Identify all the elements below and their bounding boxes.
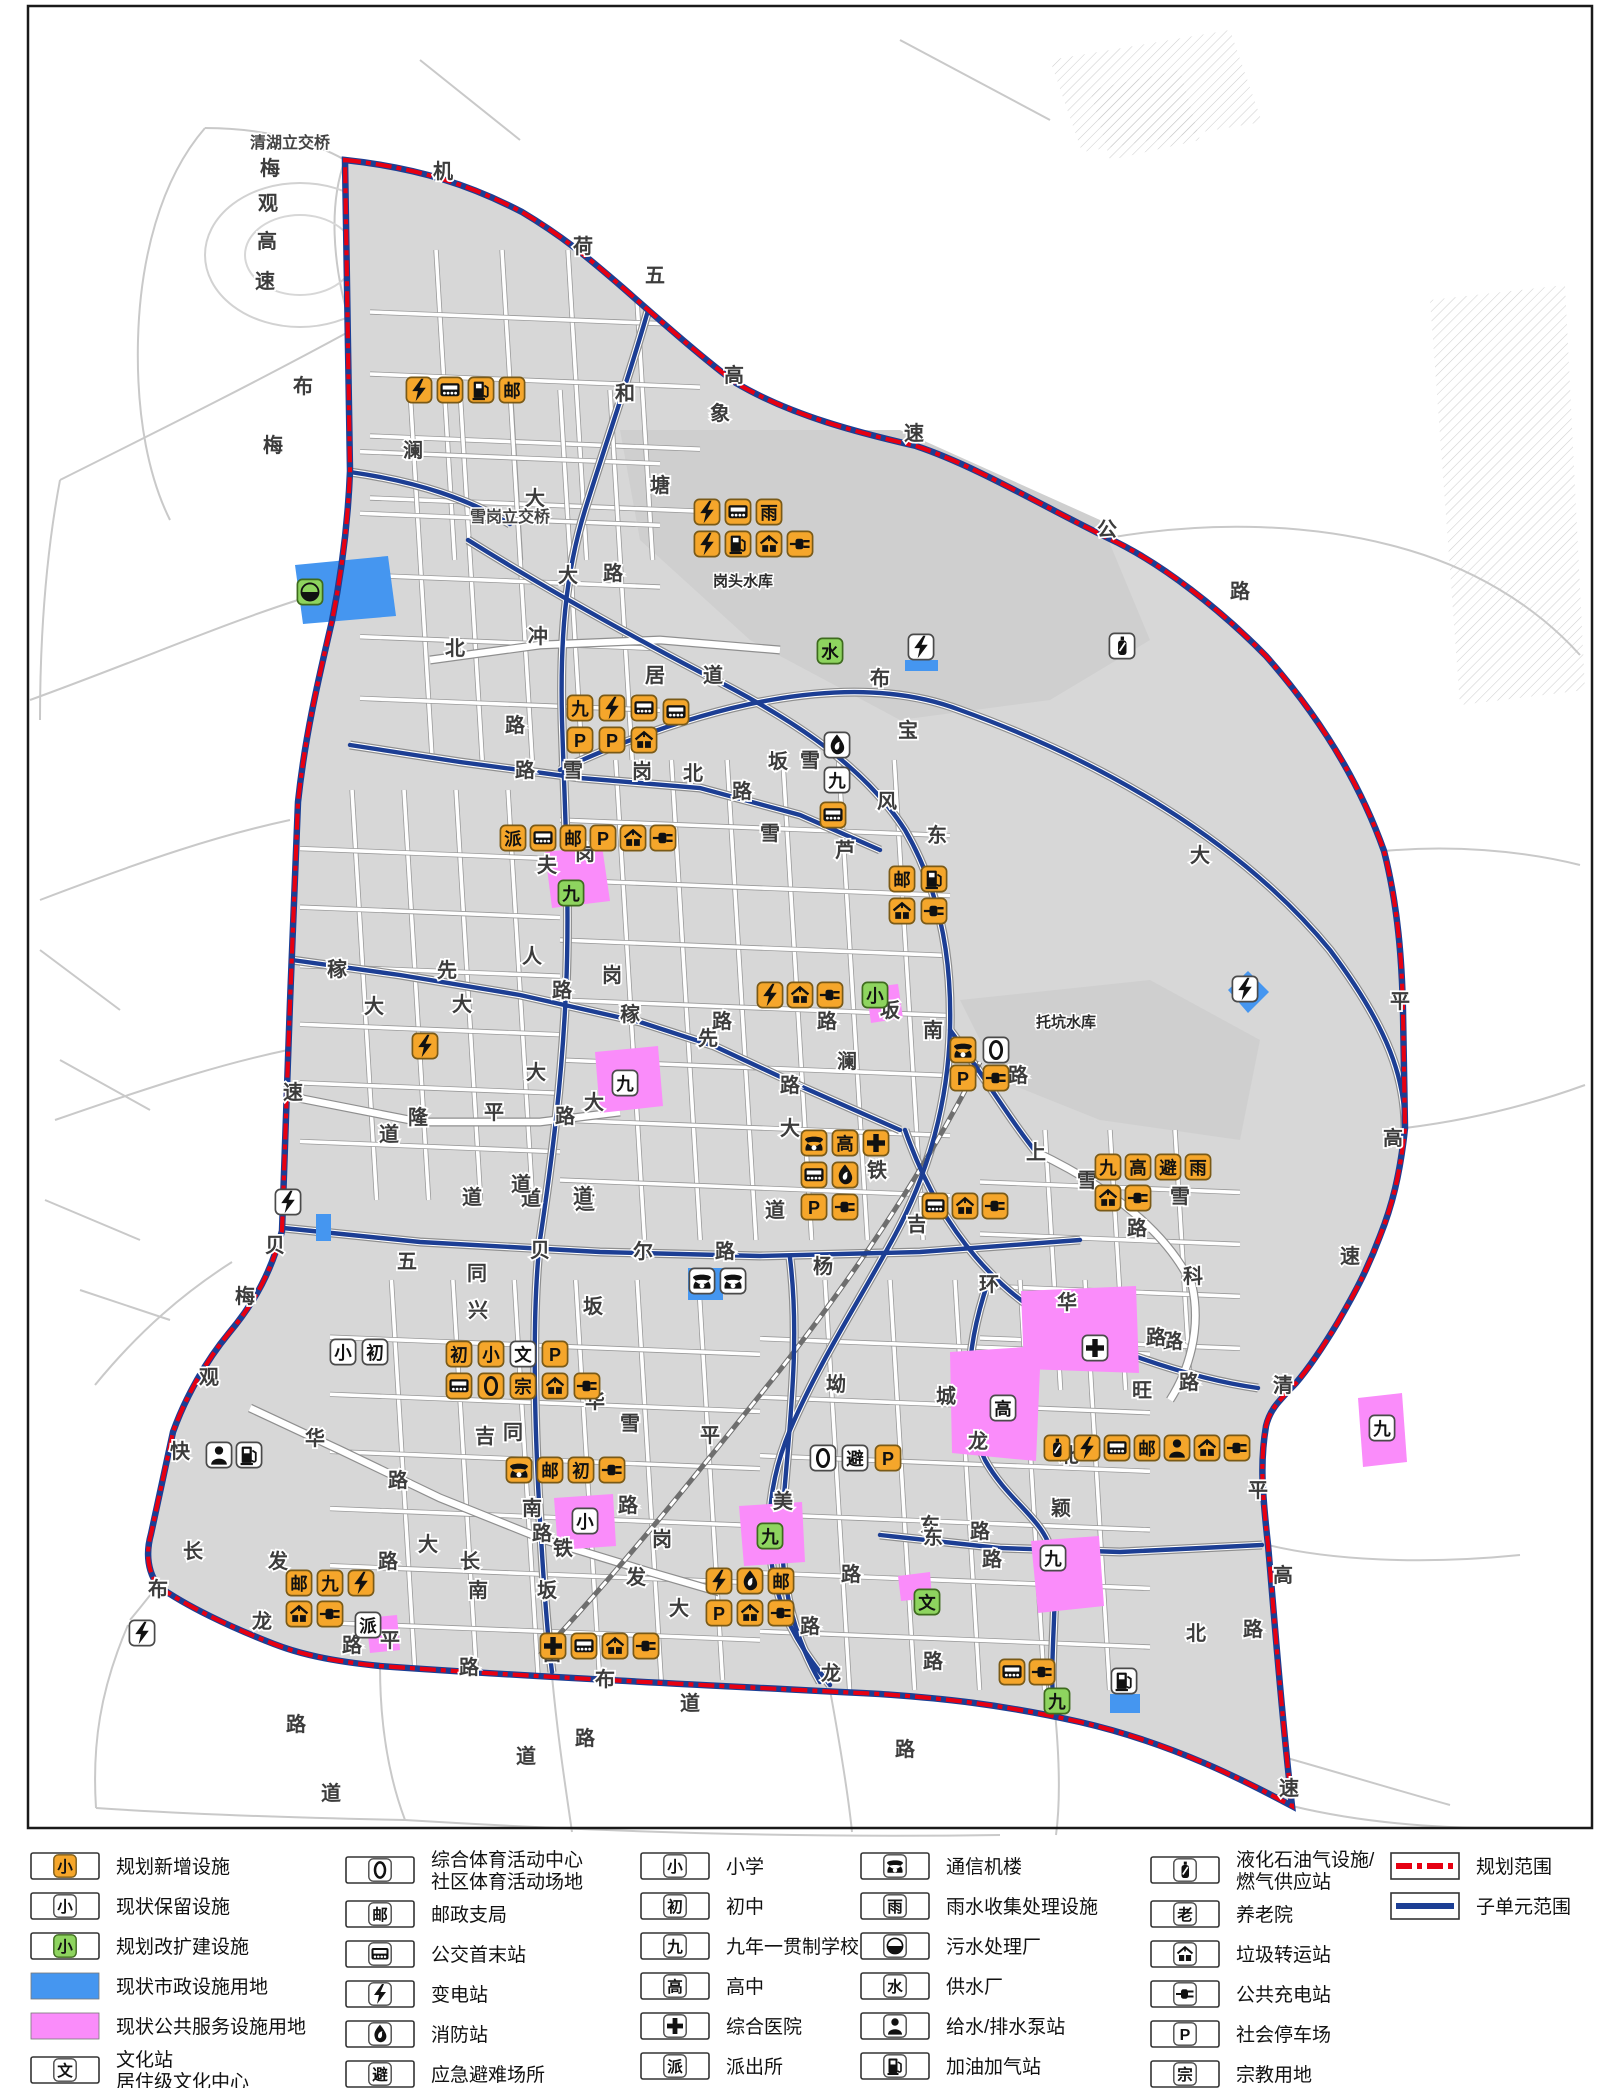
facility-icon-P: P	[599, 727, 624, 752]
road-label: 宝	[898, 718, 918, 742]
road-label: 雪	[563, 759, 583, 782]
facility-icon-bolt	[348, 1570, 373, 1595]
svg-text:老: 老	[1176, 1905, 1193, 1924]
road-label: 道	[379, 1122, 399, 1146]
facility-icon-bolt	[599, 695, 624, 720]
road-label: 大	[525, 487, 545, 510]
legend-item: 污水处理厂	[860, 1928, 1098, 1968]
svg-text:邮: 邮	[893, 870, 910, 890]
road-label: 科	[1183, 1264, 1203, 1288]
svg-text:初: 初	[366, 1343, 383, 1363]
legend-item: 公共充电站	[1150, 1976, 1374, 2016]
facility-icon-bolt	[694, 531, 719, 556]
road-label: 机	[433, 159, 453, 183]
road-label: 道	[511, 1172, 531, 1196]
road-label: 稼	[327, 957, 347, 981]
facility-icon-派: 派	[355, 1612, 380, 1637]
road-label: 路	[388, 1468, 409, 1492]
road-label: 道	[703, 663, 723, 687]
legend-swatch: 水	[860, 1972, 930, 2005]
road-label: 先	[437, 958, 457, 982]
facility-icon-P: P	[706, 1600, 731, 1625]
road-label: 路	[378, 1549, 399, 1573]
legend-label: 给水/排水泵站	[946, 2017, 1065, 2039]
facility-icon-trash	[737, 1600, 762, 1625]
road-label: 雪	[760, 822, 780, 845]
road-label: 高	[1273, 1563, 1293, 1587]
facility-icon-person	[206, 1442, 231, 1467]
road-label: 布	[595, 1667, 615, 1691]
facility-icon-trash	[756, 531, 781, 556]
svg-text:九: 九	[1043, 1549, 1062, 1569]
road-label: 冲	[528, 625, 548, 648]
facility-icon-fire	[832, 1162, 857, 1187]
facility-icon-P: P	[875, 1445, 900, 1470]
facility-icon-P: P	[950, 1065, 975, 1090]
legend-label: 现状市政设施用地	[116, 1977, 268, 1999]
legend-label: 规划改扩建设施	[116, 1937, 249, 1959]
road-label: 长	[460, 1550, 481, 1573]
road-label: 北	[683, 762, 703, 785]
road-label: 长	[183, 1540, 204, 1563]
road-label: 同	[503, 1422, 523, 1444]
road-label: 雪	[1170, 1185, 1190, 1208]
road-label: 路	[459, 1655, 480, 1679]
facility-icon-邮: 邮	[499, 377, 524, 402]
legend-swatch: 避	[345, 2060, 415, 2088]
legend-swatch: 小	[640, 1852, 710, 1885]
facility-icon-P: P	[801, 1194, 826, 1219]
facility-icon-九: 九	[1044, 1688, 1069, 1713]
svg-text:小: 小	[57, 1858, 73, 1876]
facility-icon-plug	[921, 898, 946, 923]
road-label: 大	[584, 1091, 604, 1114]
planning-map-page: 梅观高速布梅澜机荷高速公路五和象塘大大路冲北路居道布宝风雪岗北路坂雪路雪芦东夫岗…	[0, 0, 1600, 2088]
svg-text:高: 高	[994, 1399, 1011, 1419]
legend-swatch	[1150, 1940, 1220, 1973]
legend-label: 液化石油气设施/ 燃气供应站	[1236, 1850, 1374, 1894]
legend-label: 现状保留设施	[116, 1897, 230, 1919]
facility-icon-九: 九	[567, 695, 592, 720]
svg-text:文: 文	[57, 2061, 73, 2080]
svg-text:宗: 宗	[1177, 2065, 1193, 2084]
legend-swatch: 小	[30, 1852, 100, 1885]
legend-item: 子单元范围	[1390, 1888, 1571, 1928]
svg-text:避: 避	[372, 2065, 388, 2084]
svg-text:邮: 邮	[541, 1461, 558, 1481]
road-label: 路	[841, 1562, 862, 1586]
svg-text:小: 小	[667, 1858, 683, 1876]
legend-item: 通信机楼	[860, 1848, 1098, 1888]
facility-icon-九: 九	[612, 1070, 637, 1095]
facility-icon-plug	[317, 1601, 342, 1626]
facility-icon-水: 水	[817, 638, 842, 663]
facility-icon-phone	[720, 1268, 745, 1293]
facility-icon-邮: 邮	[537, 1457, 562, 1482]
facility-icon-plug	[1224, 1435, 1249, 1460]
road-label: 大	[558, 564, 578, 587]
facility-icon-bolt	[129, 1620, 154, 1645]
facility-icon-bolt	[757, 982, 782, 1007]
facility-icon-bus	[631, 695, 656, 720]
facility-icon-bus	[530, 825, 555, 850]
svg-text:小: 小	[576, 1512, 594, 1532]
legend-swatch: 派	[640, 2052, 710, 2085]
legend-item: 规划范围	[1390, 1848, 1571, 1888]
facility-icon-plug	[1125, 1185, 1150, 1210]
road-label: 象	[710, 401, 730, 425]
road-label: 布	[293, 374, 313, 398]
road-label: 隆	[408, 1105, 429, 1129]
road-label: 华	[1057, 1290, 1077, 1314]
svg-text:派: 派	[667, 2058, 683, 2076]
svg-text:P: P	[713, 1604, 725, 1624]
facility-icon-bolt	[1232, 976, 1257, 1001]
facility-icon-trash	[1095, 1185, 1120, 1210]
legend-label: 初中	[726, 1897, 764, 1919]
road-label: 路	[780, 1073, 801, 1097]
road-label: 高	[1383, 1126, 1403, 1150]
facility-icon-小: 小	[862, 982, 887, 1007]
road-label: 南	[923, 1019, 943, 1042]
legend-swatch	[860, 1852, 930, 1885]
road-label: 铁	[867, 1158, 887, 1182]
svg-text:文: 文	[514, 1345, 532, 1365]
legend-item: 加油加气站	[860, 2048, 1098, 2088]
svg-text:雨: 雨	[760, 503, 777, 523]
road-label: 龙	[821, 1661, 841, 1685]
legend-label: 供水厂	[946, 1977, 1003, 1999]
legend-swatch: 宗	[1150, 2060, 1220, 2088]
svg-text:高: 高	[836, 1134, 853, 1154]
road-label: 澜	[403, 439, 423, 462]
facility-icon-宗: 宗	[510, 1373, 535, 1398]
road-label: 人	[522, 945, 543, 968]
legend-swatch: 小	[30, 1932, 100, 1965]
road-label: 路	[1179, 1370, 1200, 1394]
water-label: 岗头水库	[713, 572, 773, 590]
road-label: 贝	[265, 1235, 285, 1257]
road-label: 道	[680, 1691, 700, 1715]
road-label: 五	[397, 1251, 417, 1273]
facility-icon-bolt	[275, 1189, 300, 1214]
facility-icon-小: 小	[478, 1341, 503, 1366]
road-label: 道	[573, 1184, 593, 1208]
svg-text:水: 水	[821, 642, 839, 662]
road-label: 速	[1279, 1777, 1299, 1800]
legend-swatch	[1150, 1856, 1220, 1889]
facility-icon-邮: 邮	[889, 866, 914, 891]
facility-icon-邮: 邮	[286, 1570, 311, 1595]
facility-icon-plug	[574, 1373, 599, 1398]
legend-item: 给水/排水泵站	[860, 2008, 1098, 2048]
svg-text:邮: 邮	[290, 1574, 307, 1594]
facility-icon-高: 高	[990, 1395, 1015, 1420]
svg-text:邮: 邮	[1138, 1439, 1155, 1459]
road-label: 高	[257, 229, 277, 253]
facility-icon-小: 小	[572, 1508, 597, 1533]
facility-icon-sport	[983, 1037, 1008, 1062]
facility-icon-九: 九	[1369, 1415, 1394, 1440]
zone-blue	[905, 660, 938, 671]
svg-text:九: 九	[666, 1938, 683, 1956]
legend-swatch: 九	[640, 1932, 710, 1965]
svg-text:水: 水	[887, 1977, 903, 1996]
legend-item: 小规划新增设施	[30, 1848, 306, 1888]
road-label: 清	[1273, 1373, 1293, 1397]
road-label: 南	[468, 1579, 488, 1602]
legend-label: 雨水收集处理设施	[946, 1897, 1098, 1919]
road-label: 铁	[553, 1536, 573, 1560]
facility-icon-九: 九	[317, 1570, 342, 1595]
road-label: 路	[515, 758, 536, 782]
legend-label: 子单元范围	[1476, 1897, 1571, 1919]
road-label: 发	[267, 1549, 289, 1573]
legend-label: 应急避难场所	[431, 2065, 545, 2087]
facility-icon-bus	[725, 499, 750, 524]
legend-item: 小现状保留设施	[30, 1888, 306, 1928]
legend-item: 邮邮政支局	[345, 1896, 583, 1936]
legend-item: 垃圾转运站	[1150, 1936, 1374, 1976]
road-label: 旺	[1132, 1380, 1152, 1402]
bridge-label: 清湖立交桥	[250, 133, 331, 152]
road-label: 路	[555, 1104, 576, 1128]
svg-text:九: 九	[760, 1527, 779, 1547]
facility-icon-小: 小	[330, 1339, 355, 1364]
facility-icon-trash	[1194, 1435, 1219, 1460]
legend-label: 社会停车场	[1236, 2025, 1331, 2047]
facility-icon-文: 文	[510, 1341, 535, 1366]
legend-swatch	[1150, 1980, 1220, 2013]
legend-item: 小规划改扩建设施	[30, 1928, 306, 1968]
legend-item: 九九年一贯制学校	[640, 1928, 859, 1968]
facility-icon-P: P	[542, 1341, 567, 1366]
facility-icon-bolt	[694, 499, 719, 524]
facility-icon-bolt	[706, 1568, 731, 1593]
facility-icon-文: 文	[914, 1589, 939, 1614]
road-label: 路	[505, 713, 526, 737]
road-label: 雪	[800, 749, 820, 772]
facility-icon-trash	[952, 1193, 977, 1218]
facility-icon-sport	[478, 1373, 503, 1398]
road-label: 道	[516, 1744, 536, 1768]
legend-swatch	[30, 2012, 100, 2045]
svg-text:P: P	[808, 1198, 820, 1218]
legend-swatch: 文	[30, 2056, 100, 2088]
facility-icon-bolt	[412, 1033, 437, 1058]
legend-label: 污水处理厂	[946, 1937, 1041, 1959]
road-label: 坂	[537, 1579, 558, 1602]
facility-icon-bus	[437, 377, 462, 402]
svg-text:小: 小	[57, 1898, 73, 1916]
road-label: 雪	[620, 1412, 640, 1435]
road-label: 平	[1248, 1480, 1268, 1502]
road-label: 颖	[1051, 1497, 1071, 1520]
legend-item: 宗宗教用地	[1150, 2056, 1374, 2088]
facility-icon-phone	[950, 1037, 975, 1062]
facility-icon-bus	[1104, 1435, 1129, 1460]
zone-blue	[316, 1214, 331, 1241]
legend-item: 变电站	[345, 1976, 583, 2016]
facility-icon-九: 九	[1095, 1154, 1120, 1179]
road-label: 尔	[633, 1239, 653, 1263]
road-label: 路	[532, 1521, 553, 1545]
road-label: 大	[452, 993, 472, 1016]
svg-text:九: 九	[615, 1074, 634, 1094]
road-label: 道	[321, 1781, 341, 1805]
facility-icon-plug	[787, 531, 812, 556]
road-label: 速	[1340, 1245, 1360, 1268]
legend-label: 规划范围	[1476, 1857, 1552, 1879]
road-label: 塘	[650, 473, 670, 497]
legend-label: 加油加气站	[946, 2057, 1041, 2079]
road-label: 龙	[252, 1609, 272, 1633]
road-label: 路	[982, 1547, 1003, 1571]
road-label: 居	[645, 665, 665, 687]
road-label: 平	[484, 1102, 504, 1124]
road-label: 贝	[530, 1240, 550, 1262]
legend-column-6: 规划范围子单元范围	[1390, 1848, 1571, 1928]
facility-icon-bus	[801, 1162, 826, 1187]
road-label: 速	[255, 270, 275, 293]
road-label: 观	[258, 193, 278, 215]
road-label: 澜	[837, 1050, 857, 1073]
legend-swatch	[860, 2012, 930, 2045]
facility-icon-bus	[922, 1193, 947, 1218]
road-label: 岗	[602, 964, 622, 987]
road-label: 大	[669, 1597, 689, 1620]
road-label: 梅	[260, 156, 280, 180]
legend-swatch: 老	[1150, 1900, 1220, 1933]
water-label: 托坑水库	[1036, 1013, 1096, 1031]
legend-swatch	[345, 2020, 415, 2053]
legend-item: 综合体育活动中心 社区体育活动场地	[345, 1848, 583, 1896]
road-label: 城	[936, 1384, 956, 1408]
road-label: 东	[927, 823, 947, 847]
road-label: 速	[904, 422, 924, 445]
legend-item: 消防站	[345, 2016, 583, 2056]
road-label: 大	[526, 1061, 546, 1084]
facility-icon-trash	[602, 1633, 627, 1658]
map-canvas: 梅观高速布梅澜机荷高速公路五和象塘大大路冲北路居道布宝风雪岗北路坂雪路雪芦东夫岗…	[0, 0, 1600, 1840]
legend-label: 派出所	[726, 2057, 783, 2079]
legend-item: 液化石油气设施/ 燃气供应站	[1150, 1848, 1374, 1896]
road-label: 路	[1127, 1216, 1148, 1240]
svg-text:P: P	[957, 1069, 969, 1089]
facility-icon-trash	[631, 727, 656, 752]
road-label: 北	[1186, 1622, 1206, 1645]
road-label: 风	[877, 791, 897, 813]
legend-item: 现状市政设施用地	[30, 1968, 306, 2008]
legend-column-5: 液化石油气设施/ 燃气供应站老养老院垃圾转运站公共充电站P社会停车场宗宗教用地	[1150, 1848, 1374, 2088]
legend-label: 公共充电站	[1236, 1985, 1331, 2007]
svg-text:P: P	[597, 829, 609, 849]
svg-text:P: P	[574, 731, 586, 751]
facility-icon-trash	[889, 898, 914, 923]
facility-icon-plug	[983, 1065, 1008, 1090]
facility-icon-trash	[286, 1601, 311, 1626]
road-label: 北	[445, 637, 465, 660]
legend-label: 邮政支局	[431, 1905, 507, 1927]
facility-icon-fuel	[468, 377, 493, 402]
svg-text:九: 九	[561, 884, 580, 904]
svg-text:邮: 邮	[503, 381, 520, 401]
road-label: 发	[625, 1565, 647, 1589]
road-label: 坂	[583, 1295, 604, 1318]
legend-item: 初初中	[640, 1888, 859, 1928]
legend-swatch	[860, 1932, 930, 1965]
legend: 小规划新增设施小现状保留设施小规划改扩建设施现状市政设施用地现状公共服务设施用地…	[0, 1840, 1600, 2088]
svg-text:高: 高	[667, 1977, 683, 1996]
legend-swatch	[30, 1972, 100, 2005]
road-label: 布	[870, 666, 890, 690]
road-label: 布	[148, 1577, 168, 1601]
svg-text:九: 九	[1098, 1158, 1117, 1178]
road-label: 路	[923, 1649, 944, 1673]
legend-swatch: 初	[640, 1892, 710, 1925]
legend-column-4: 通信机楼雨雨水收集处理设施污水处理厂水供水厂给水/排水泵站加油加气站	[860, 1848, 1098, 2088]
road-label: 高	[724, 363, 744, 387]
facility-icon-phone	[506, 1457, 531, 1482]
legend-swatch	[640, 2012, 710, 2045]
facility-icon-雨: 雨	[756, 499, 781, 524]
facility-icon-bus	[663, 699, 688, 724]
road-label: 路	[1146, 1325, 1167, 1349]
facility-icon-bus	[571, 1633, 596, 1658]
road-label: 观	[199, 1367, 219, 1389]
legend-label: 文化站 居住级文化中心	[116, 2050, 249, 2088]
legend-swatch	[1390, 1892, 1460, 1925]
road-label: 梅	[263, 433, 283, 457]
road-label: 路	[618, 1493, 639, 1517]
facility-icon-九: 九	[824, 767, 849, 792]
road-label: 路	[712, 1009, 733, 1033]
legend-swatch	[1390, 1852, 1460, 1885]
road-label: 和	[615, 382, 635, 405]
facility-icon-fire	[737, 1568, 762, 1593]
legend-item: 小小学	[640, 1848, 859, 1888]
facility-icon-雨: 雨	[1185, 1154, 1210, 1179]
facility-icon-P: P	[590, 825, 615, 850]
facility-icon-person	[1164, 1435, 1189, 1460]
road-label: 快	[170, 1439, 191, 1463]
road-label: 路	[1163, 1329, 1184, 1353]
facility-icon-bus	[820, 802, 845, 827]
facility-icon-plug	[817, 982, 842, 1007]
road-label: 岗	[632, 760, 652, 783]
svg-text:高: 高	[1129, 1158, 1146, 1178]
legend-swatch: 小	[30, 1892, 100, 1925]
legend-label: 规划新增设施	[116, 1857, 230, 1879]
facility-icon-plus	[863, 1130, 888, 1155]
facility-icon-plug	[1029, 1659, 1054, 1684]
facility-icon-bowl	[297, 579, 322, 604]
facility-icon-九: 九	[1040, 1545, 1065, 1570]
road-label: 芦	[835, 838, 855, 862]
road-label: 路	[1243, 1617, 1264, 1641]
legend-item: 避应急避难场所	[345, 2056, 583, 2088]
legend-item: 高高中	[640, 1968, 859, 2008]
road-label: 稼	[620, 1002, 640, 1026]
road-label: 道	[462, 1185, 482, 1209]
legend-label: 垃圾转运站	[1236, 1945, 1331, 1967]
legend-column-3: 小小学初初中九九年一贯制学校高高中综合医院派派出所	[640, 1848, 859, 2088]
facility-icon-避: 避	[1155, 1154, 1180, 1179]
svg-text:九: 九	[570, 699, 589, 719]
legend-swatch	[345, 1980, 415, 2013]
svg-text:初: 初	[450, 1345, 467, 1365]
svg-text:小: 小	[334, 1343, 352, 1363]
